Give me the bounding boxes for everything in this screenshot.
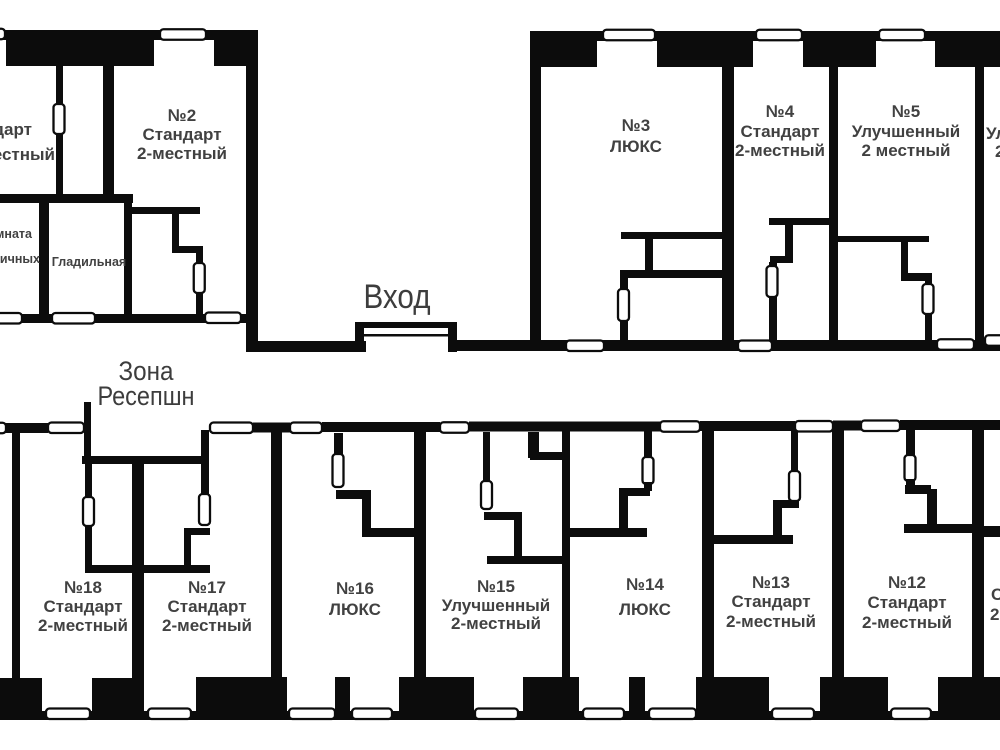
svg-text:2-местный: 2-местный [735,141,825,160]
svg-text:Улучшенный: Улучшенный [442,596,551,615]
svg-text:№15: №15 [477,577,515,596]
svg-text:Стандарт: Стандарт [0,120,32,139]
svg-text:2-м: 2-м [990,605,1000,624]
svg-text:№4: №4 [766,102,795,121]
svg-text:Улучшенный: Улучшенный [986,124,1000,143]
svg-text:Ресепшн: Ресепшн [98,381,195,411]
svg-text:комната: комната [0,227,33,241]
svg-text:ЛЮКС: ЛЮКС [610,137,662,156]
svg-text:№3: №3 [622,116,650,135]
svg-text:2-местный: 2-местный [862,613,952,632]
svg-text:№17: №17 [188,578,226,597]
svg-text:2-местный: 2-местный [995,142,1000,161]
svg-text:Стандарт: Стандарт [142,125,221,144]
svg-text:№14: №14 [626,575,664,594]
svg-text:2-местный: 2-местный [451,614,541,633]
svg-text:2-местный: 2-местный [162,616,252,635]
svg-text:ЛЮКС: ЛЮКС [329,600,381,619]
svg-text:Улучшенный: Улучшенный [852,122,961,141]
svg-text:Стандарт: Стандарт [43,597,122,616]
svg-text:Стандарт: Стандарт [867,593,946,612]
svg-text:2-местный: 2-местный [38,616,128,635]
svg-text:горничных: горничных [0,252,40,266]
svg-text:№13: №13 [752,573,790,592]
svg-text:2 местный: 2 местный [861,141,950,160]
svg-text:№2: №2 [168,106,196,125]
svg-text:№18: №18 [64,578,102,597]
svg-text:Вход: Вход [364,278,431,316]
svg-text:Стандарт: Стандарт [167,597,246,616]
svg-text:2-местный: 2-местный [137,144,227,163]
svg-text:№16: №16 [336,579,374,598]
svg-text:Стандарт: Стандарт [740,122,819,141]
svg-text:Стандарт: Стандарт [731,592,810,611]
svg-text:ЛЮКС: ЛЮКС [619,600,671,619]
svg-text:Ст: Ст [991,585,1000,604]
svg-text:2-местный: 2-местный [0,145,55,164]
svg-text:Гладильная: Гладильная [52,255,126,269]
svg-text:№5: №5 [892,102,920,121]
svg-text:2-местный: 2-местный [726,612,816,631]
svg-text:№12: №12 [888,573,926,592]
